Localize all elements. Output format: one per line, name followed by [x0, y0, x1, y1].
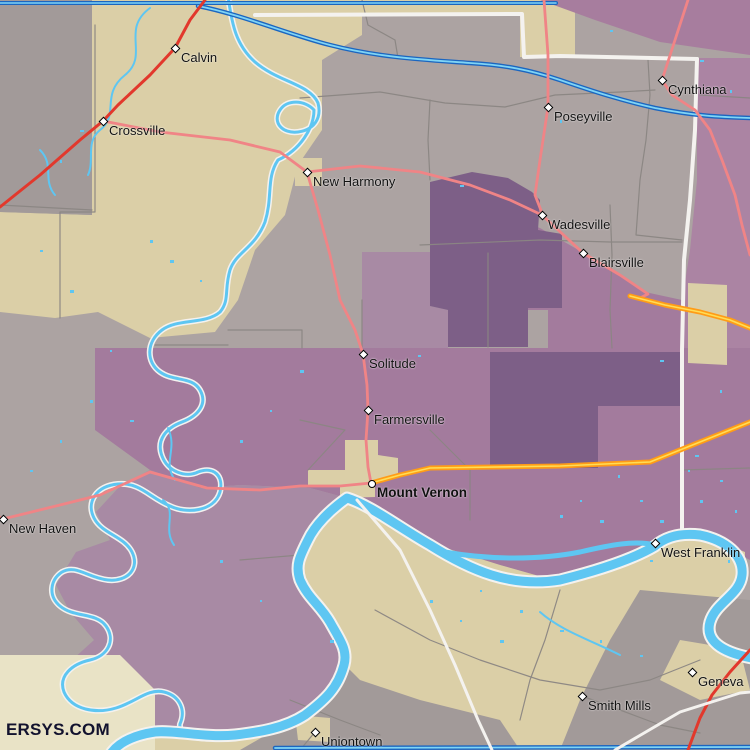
- town-label: Poseyville: [554, 109, 613, 124]
- town-label: Wadesville: [548, 217, 610, 232]
- town-marker-crossville: [99, 117, 109, 127]
- town-marker-smith-mills: [578, 692, 588, 702]
- town-label: Geneva: [698, 674, 744, 689]
- town-label: Uniontown: [321, 734, 382, 749]
- town-marker-west-franklin: [651, 539, 661, 549]
- town-marker-new-harmony: [303, 168, 313, 178]
- town-marker-calvin: [171, 44, 181, 54]
- town-label: New Haven: [9, 521, 76, 536]
- town-label: Solitude: [369, 356, 416, 371]
- town-marker-mount-vernon: [368, 480, 376, 488]
- town-label: Farmersville: [374, 412, 445, 427]
- town-label: Cynthiana: [668, 82, 727, 97]
- town-marker-blairsville: [579, 249, 589, 259]
- town-label: Calvin: [181, 50, 217, 65]
- town-label: West Franklin: [661, 545, 740, 560]
- town-marker-new-haven: [0, 515, 8, 525]
- town-marker-farmersville: [364, 406, 374, 416]
- town-marker-geneva: [688, 668, 698, 678]
- towns-layer: CalvinCrossvilleNew HarmonyPoseyvilleCyn…: [0, 0, 750, 750]
- town-marker-wadesville: [538, 211, 548, 221]
- town-label: Blairsville: [589, 255, 644, 270]
- watermark: ERSYS.COM: [6, 720, 110, 740]
- town-marker-uniontown: [311, 728, 321, 738]
- town-marker-poseyville: [544, 103, 554, 113]
- town-marker-solitude: [359, 350, 369, 360]
- map-canvas: CalvinCrossvilleNew HarmonyPoseyvilleCyn…: [0, 0, 750, 750]
- town-label: New Harmony: [313, 174, 395, 189]
- town-label: Smith Mills: [588, 698, 651, 713]
- town-marker-cynthiana: [658, 76, 668, 86]
- town-label: Mount Vernon: [377, 485, 467, 500]
- town-label: Crossville: [109, 123, 165, 138]
